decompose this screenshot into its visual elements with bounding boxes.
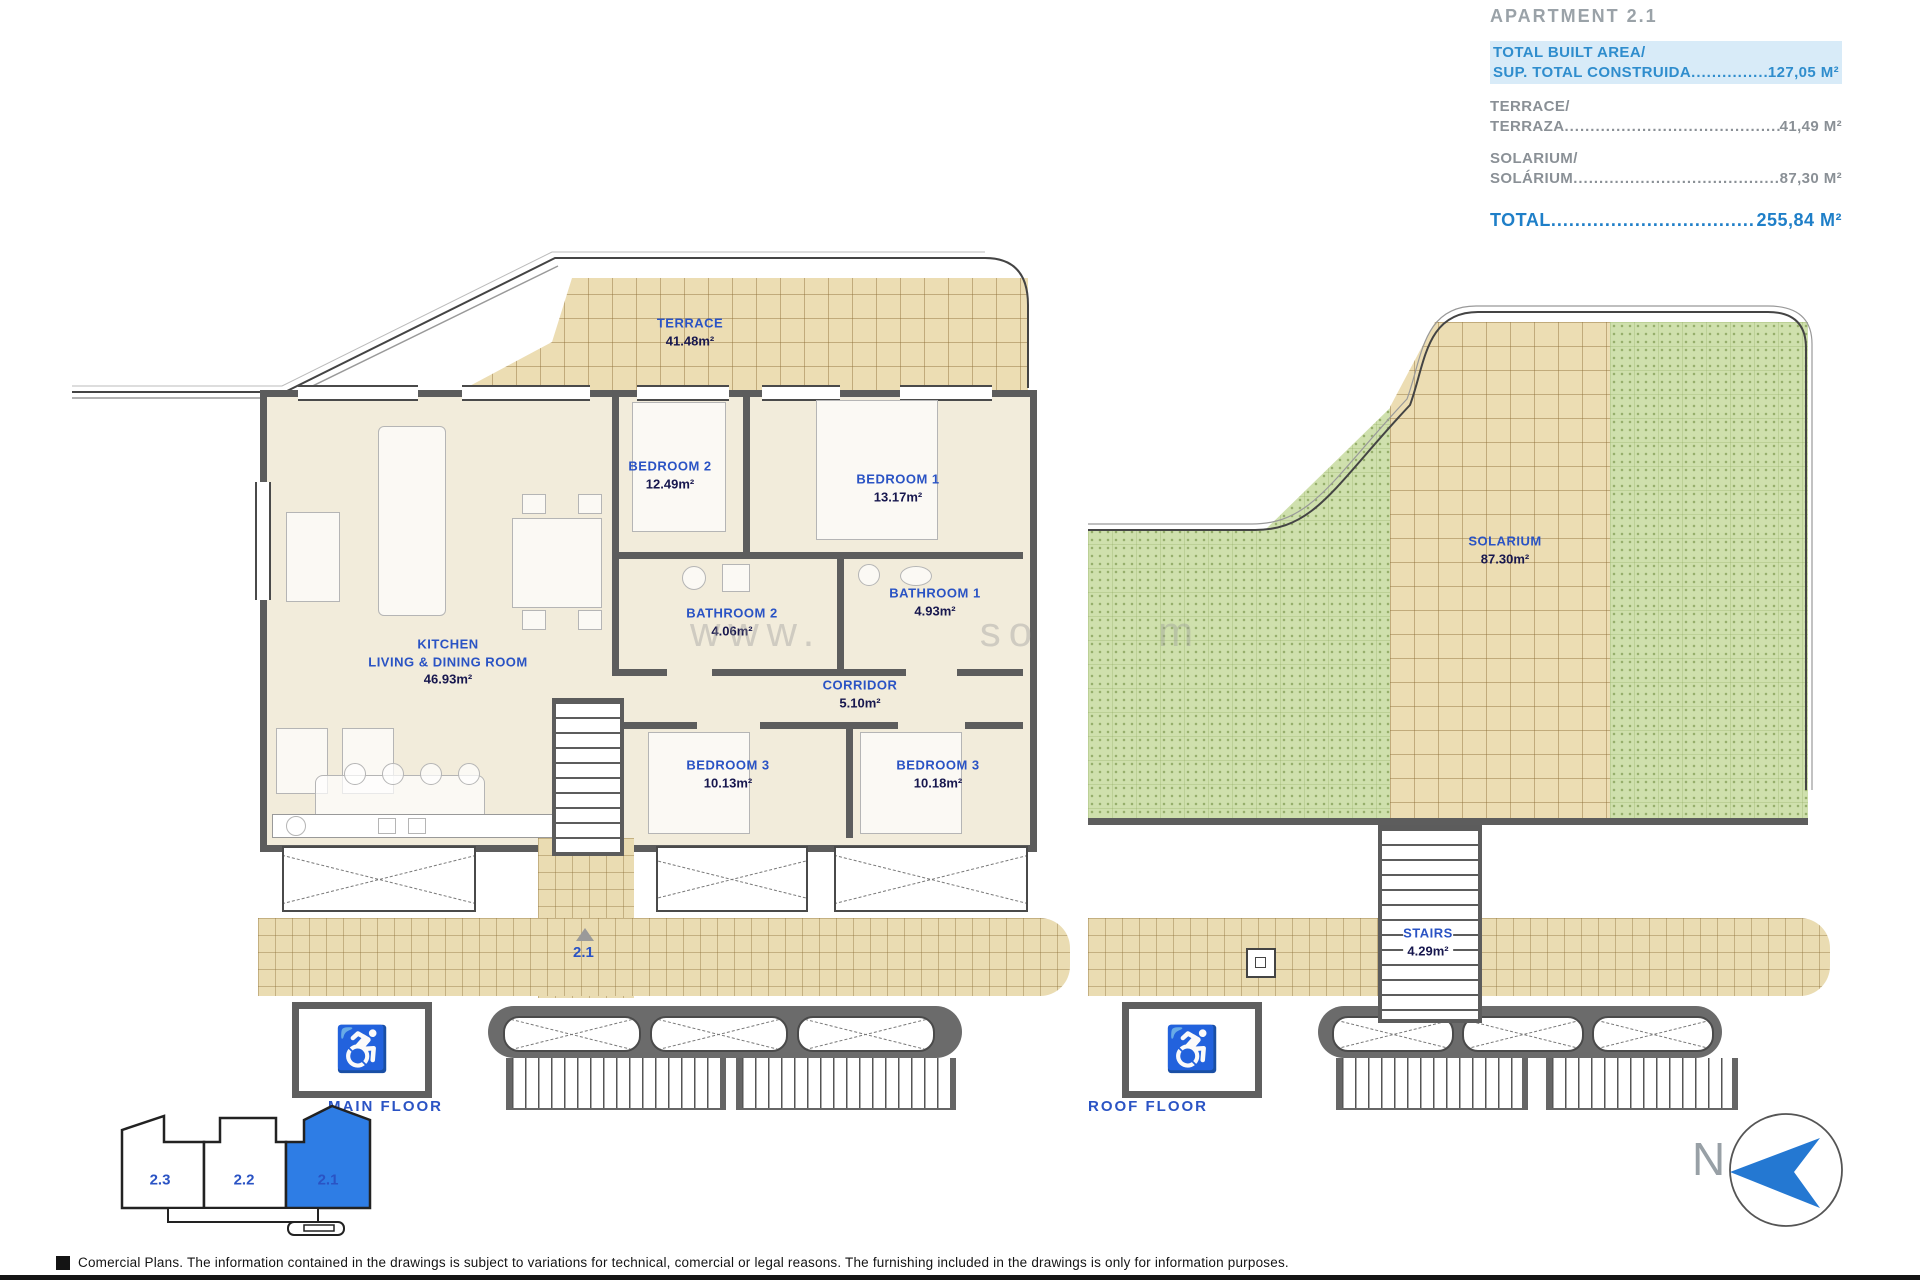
room-label-terrace: TERRACE 41.48m² [657,314,723,349]
terrace-area-value: 41.48m² [657,332,723,350]
wheelchair-icon: ♿ [1165,1028,1220,1072]
wall [612,669,667,676]
bedroom1-area: 13.17m² [856,488,939,506]
built-area-line2: SUP. TOTAL CONSTRUIDA [1493,63,1691,83]
bathroom1-name: BATHROOM 1 [889,584,980,602]
window [900,385,992,401]
roof-green-area [1610,322,1808,825]
wall [965,722,1023,729]
stool [382,763,404,785]
terrace-line2: TERRAZA [1490,117,1564,137]
bedroom2-area: 12.49m² [628,475,711,493]
room-label-corridor: CORRIDOR 5.10m² [823,676,898,711]
room-label-stairs: STAIRS 4.29m² [1403,924,1453,959]
footer-mark [56,1256,70,1270]
built-area-dots: ................ [1691,63,1768,83]
entrance-arrow-icon [576,928,594,941]
corridor-name: CORRIDOR [823,676,898,694]
wall [846,722,853,838]
corridor-area: 5.10m² [823,694,898,712]
solarium-line2: SOLÁRIUM [1490,169,1573,189]
window [762,385,840,401]
bottom-bar [0,1275,1920,1280]
chair [578,494,602,514]
parking-cross-box [656,846,808,912]
key-plan-shapes [108,1090,398,1245]
solarium-area [1390,322,1610,825]
terrace-line1: TERRACE/ [1490,97,1842,117]
north-label: N [1692,1132,1725,1186]
hob [408,818,426,834]
room-label-kitchen: KITCHEN LIVING & DINING ROOM 46.93m² [368,636,528,689]
wall [957,669,1023,676]
wall [612,722,697,729]
wall [612,397,619,669]
bedroom2-name: BEDROOM 2 [628,457,711,475]
parking-cross-box [834,846,1028,912]
built-area-line1: TOTAL BUILT AREA/ [1493,43,1839,63]
solarium-value: 87,30 M² [1780,169,1842,189]
built-area-row: TOTAL BUILT AREA/ SUP. TOTAL CONSTRUIDA … [1490,41,1842,84]
roof-floor-plan: SOLARIUM 87.30m² STAIRS 4.29m² ♿ ROOF FL… [1080,230,1850,1120]
bedroom3a-name: BEDROOM 3 [686,756,769,774]
chair [578,610,602,630]
sofa [378,426,446,616]
window [298,385,418,401]
roof-elevator: ♿ [1122,1002,1262,1098]
total-row: TOTAL ..................................… [1490,210,1842,231]
chair [522,610,546,630]
main-floor-plan: TERRACE 41.48m² BEDR [60,230,1070,1120]
solarium-name: SOLARIUM [1468,532,1541,550]
total-dots: ....................................... [1551,210,1757,231]
key-plan: 2.3 2.2 2.1 [108,1090,398,1245]
built-area-value: 127,05 M² [1768,63,1839,83]
stairs [552,698,624,856]
wall [743,397,750,559]
stair-run [506,1058,726,1110]
disclaimer-text: Comercial Plans. The information contain… [78,1255,1289,1270]
total-label: TOTAL [1490,210,1551,231]
bedroom3b-area: 10.18m² [896,774,979,792]
parking-cross-box [282,846,476,912]
sink [378,818,396,834]
room-label-bedroom3b: BEDROOM 3 10.18m² [896,756,979,791]
room-label-bedroom2: BEDROOM 2 12.49m² [628,457,711,492]
toilet [682,566,706,590]
wall [1088,818,1808,825]
total-value: 255,84 M² [1756,210,1842,231]
solarium-area-value: 87.30m² [1468,550,1541,568]
washbasin [722,564,750,592]
bedroom1-name: BEDROOM 1 [856,470,939,488]
key-unit-2-2: 2.2 [234,1172,255,1189]
room-label-bedroom3a: BEDROOM 3 10.13m² [686,756,769,791]
stool [344,763,366,785]
key-unit-2-1: 2.1 [318,1172,339,1189]
summary-panel: APARTMENT 2.1 TOTAL BUILT AREA/ SUP. TOT… [1490,6,1842,231]
wall [760,722,898,729]
stairs-area: 4.29m² [1403,942,1453,960]
stairs-name: STAIRS [1403,924,1453,942]
wheelchair-icon: ♿ [335,1028,390,1072]
sofa [286,512,340,602]
stair-cross-box [1592,1016,1714,1052]
room-label-bedroom1: BEDROOM 1 13.17m² [856,470,939,505]
stool [420,763,442,785]
walkway [258,918,1070,996]
elevator: ♿ [292,1002,432,1098]
watermark: www. so m [690,608,1201,656]
bedroom3b-name: BEDROOM 3 [896,756,979,774]
roof-floor-label: ROOF FLOOR [1088,1098,1208,1115]
kitchen-name-line1: KITCHEN [368,636,528,654]
terrace-name: TERRACE [657,314,723,332]
kitchen-name-line2: LIVING & DINING ROOM [368,653,528,671]
stair-cross-box [503,1016,641,1052]
vent-inner [1255,957,1266,968]
room-label-solarium: SOLARIUM 87.30m² [1468,532,1541,567]
window [637,385,729,401]
chair [522,494,546,514]
terrace-row: TERRACE/ TERRAZA .......................… [1490,97,1842,136]
bedroom3a-area: 10.13m² [686,774,769,792]
vent-box [1246,948,1276,978]
terrace-dots: ........................................… [1564,117,1779,137]
solarium-dots: ........................................… [1573,169,1779,189]
stair-cross-box [650,1016,788,1052]
window [255,482,271,600]
basin [286,816,306,836]
wall [612,552,1023,559]
dining-table [512,518,602,608]
stair-run [736,1058,956,1110]
stool [458,763,480,785]
solarium-row: SOLARIUM/ SOLÁRIUM .....................… [1490,149,1842,188]
wall [712,669,906,676]
key-unit-2-3: 2.3 [150,1172,171,1189]
entrance-marker: 2.1 [573,944,594,961]
solarium-line1: SOLARIUM/ [1490,149,1842,169]
stair-cross-box [797,1016,935,1052]
north-compass: N [1688,1098,1863,1243]
washbasin [900,566,932,586]
kitchen-area: 46.93m² [368,671,528,689]
apartment-title: APARTMENT 2.1 [1490,6,1842,27]
window [462,385,590,401]
terrace-value: 41,49 M² [1780,117,1842,137]
toilet [858,564,880,586]
stair-run [1336,1058,1528,1110]
